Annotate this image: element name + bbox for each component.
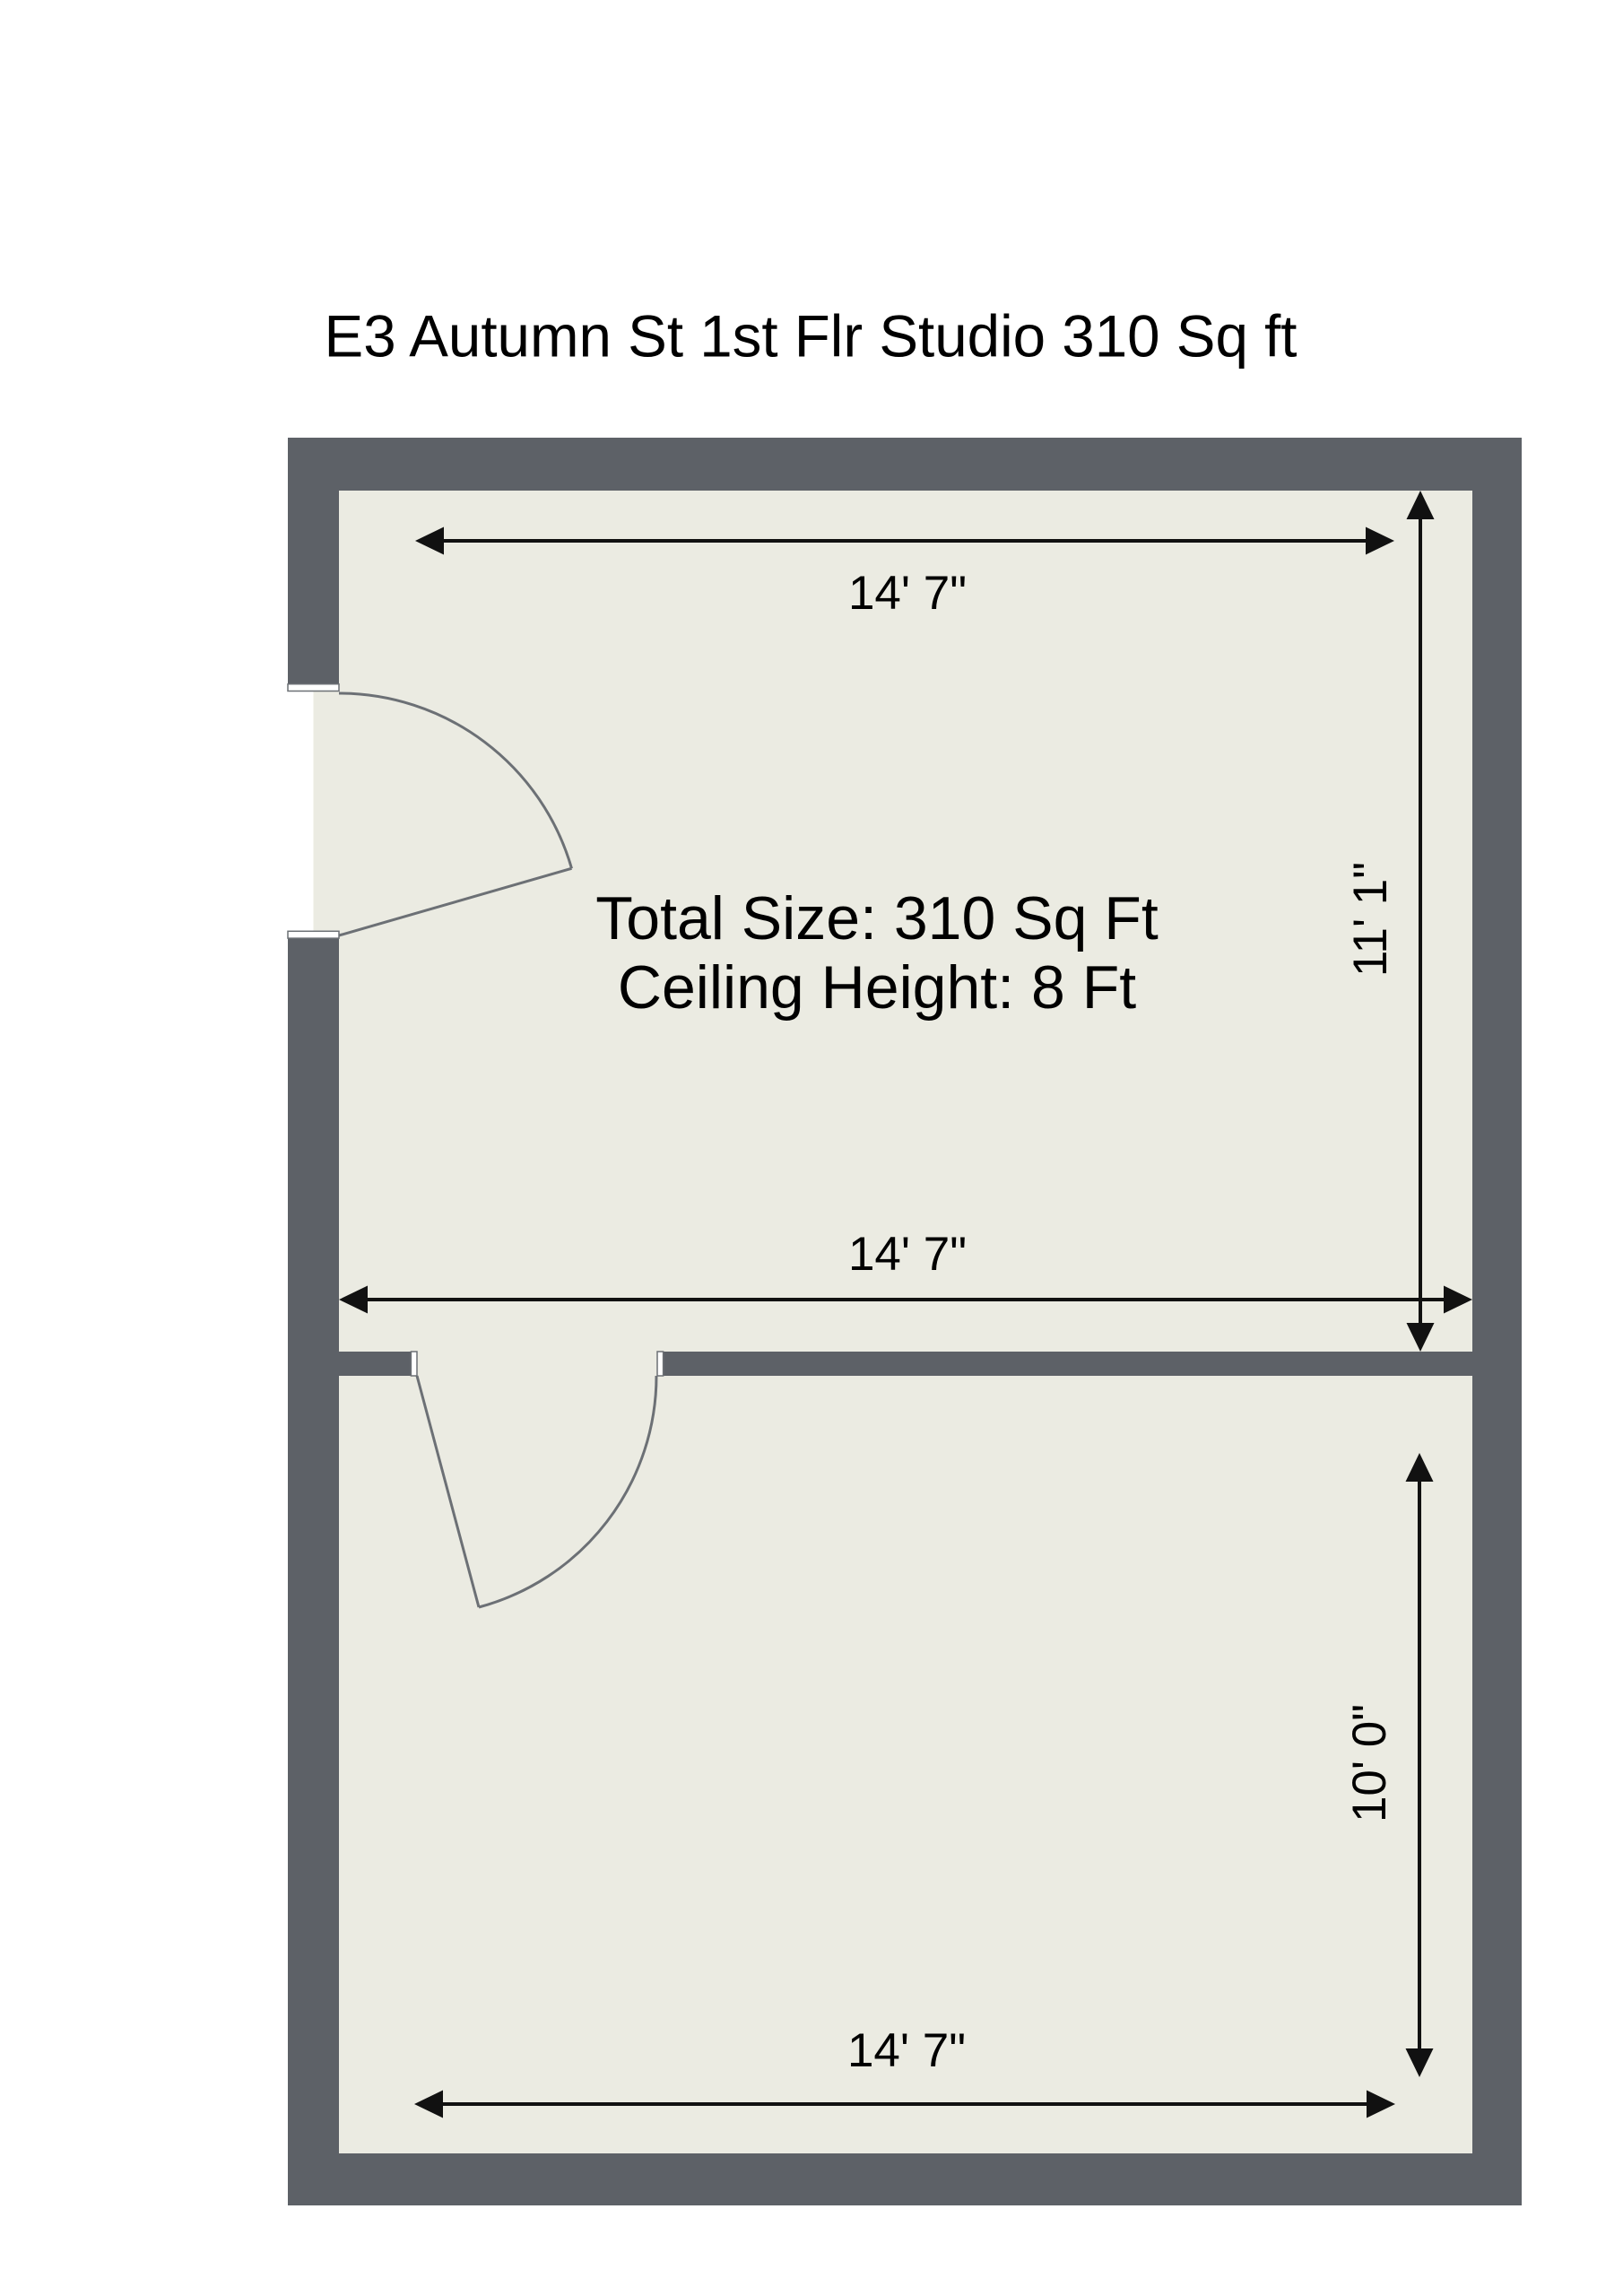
svg-text:10' 0": 10' 0": [1343, 1704, 1396, 1822]
svg-text:14' 7": 14' 7": [847, 2024, 966, 2077]
svg-text:11' 1": 11' 1": [1344, 862, 1397, 977]
svg-text:Ceiling Height: 8 Ft: Ceiling Height: 8 Ft: [618, 953, 1136, 1022]
svg-text:Total Size: 310 Sq Ft: Total Size: 310 Sq Ft: [595, 884, 1159, 952]
svg-text:14' 7": 14' 7": [848, 567, 967, 620]
svg-text:14' 7": 14' 7": [848, 1228, 967, 1281]
svg-text:E3 Autumn St 1st Flr Studio 31: E3 Autumn St 1st Flr Studio 310 Sq ft: [325, 304, 1298, 370]
